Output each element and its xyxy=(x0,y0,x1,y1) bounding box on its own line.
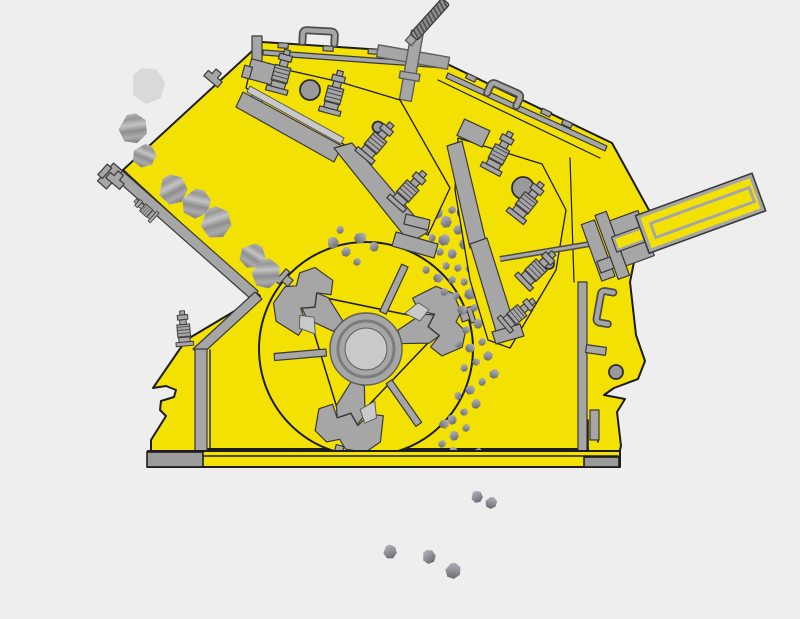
hub-ring-2 xyxy=(345,328,387,370)
base-skid xyxy=(147,451,620,467)
right-vertical-rail xyxy=(578,282,587,454)
left-vertical-rail xyxy=(195,349,207,453)
side-hole xyxy=(609,365,623,379)
base-cap-left xyxy=(147,452,203,467)
side-tab-2 xyxy=(590,410,599,440)
apron1-hole-1 xyxy=(300,80,320,100)
base-slab xyxy=(148,451,620,467)
diagram-svg xyxy=(0,0,800,619)
base-cap-right xyxy=(584,457,619,467)
hub xyxy=(330,313,402,385)
impact-crusher-diagram xyxy=(0,0,800,619)
